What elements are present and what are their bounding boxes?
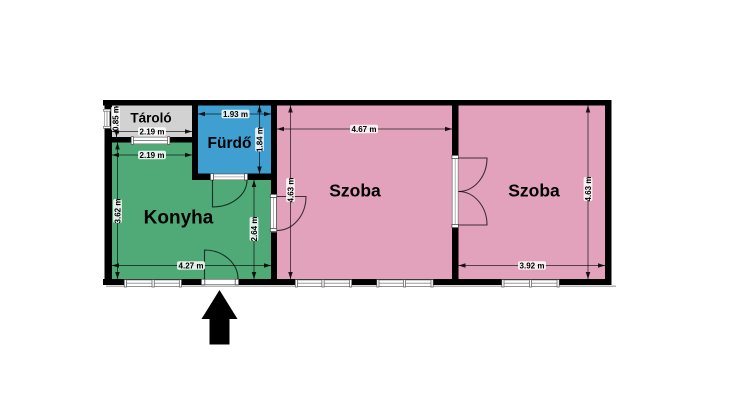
svg-text:3.62 m: 3.62 m	[113, 199, 122, 224]
svg-text:2.19 m: 2.19 m	[140, 127, 165, 136]
svg-text:2.64 m: 2.64 m	[250, 217, 259, 242]
svg-text:2.19 m: 2.19 m	[140, 151, 165, 160]
svg-text:Tároló: Tároló	[130, 111, 171, 126]
svg-text:4.63 m: 4.63 m	[286, 178, 295, 203]
svg-text:3.92 m: 3.92 m	[520, 261, 545, 270]
svg-text:4.67 m: 4.67 m	[352, 125, 377, 134]
svg-text:Konyha: Konyha	[144, 208, 214, 229]
svg-text:Szoba: Szoba	[329, 181, 381, 201]
svg-text:1.84 m: 1.84 m	[255, 127, 264, 152]
svg-text:1.93 m: 1.93 m	[223, 110, 248, 119]
svg-text:0.85 m: 0.85 m	[111, 106, 120, 131]
svg-text:4.27 m: 4.27 m	[179, 261, 204, 270]
svg-text:Fürdő: Fürdő	[208, 135, 252, 152]
svg-text:4.63 m: 4.63 m	[584, 177, 593, 202]
svg-text:Szoba: Szoba	[508, 181, 560, 201]
